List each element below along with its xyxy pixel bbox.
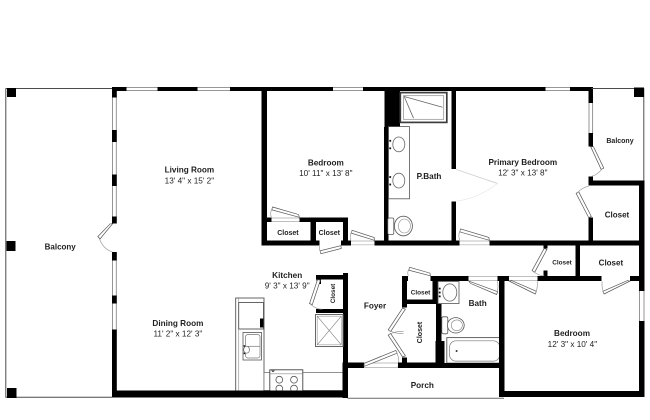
svg-text:Balcony: Balcony	[45, 243, 77, 252]
svg-text:Closet: Closet	[599, 259, 624, 268]
svg-text:Balcony: Balcony	[606, 138, 633, 145]
svg-text:Dining Room: Dining Room	[152, 319, 203, 328]
svg-text:Closet: Closet	[552, 259, 572, 266]
svg-text:Closet: Closet	[605, 210, 630, 219]
svg-text:9' 3" x 13' 9": 9' 3" x 13' 9"	[265, 282, 310, 291]
svg-text:Living Room: Living Room	[165, 166, 215, 175]
svg-text:Bedroom: Bedroom	[308, 158, 344, 167]
svg-text:12' 3" x 13' 8": 12' 3" x 13' 8"	[498, 169, 548, 178]
svg-text:Porch: Porch	[411, 381, 434, 390]
svg-text:13' 4" x 15' 2": 13' 4" x 15' 2"	[165, 176, 215, 185]
svg-text:Closet: Closet	[411, 290, 431, 297]
svg-text:10' 11" x 13' 8": 10' 11" x 13' 8"	[299, 169, 352, 178]
svg-text:Closet: Closet	[330, 283, 337, 303]
svg-text:P.Bath: P.Bath	[417, 172, 442, 181]
svg-text:Primary Bedroom: Primary Bedroom	[488, 158, 557, 167]
svg-text:Kitchen: Kitchen	[272, 271, 302, 280]
svg-text:Bedroom: Bedroom	[554, 329, 590, 338]
svg-text:Closet: Closet	[319, 230, 341, 237]
svg-text:12' 3" x 10' 4": 12' 3" x 10' 4"	[548, 340, 598, 349]
svg-text:Bath: Bath	[469, 299, 487, 308]
svg-text:Closet: Closet	[417, 321, 424, 343]
svg-text:Foyer: Foyer	[364, 301, 387, 310]
svg-text:Closet: Closet	[277, 230, 299, 237]
svg-text:11' 2" x 12' 3": 11' 2" x 12' 3"	[153, 330, 202, 339]
